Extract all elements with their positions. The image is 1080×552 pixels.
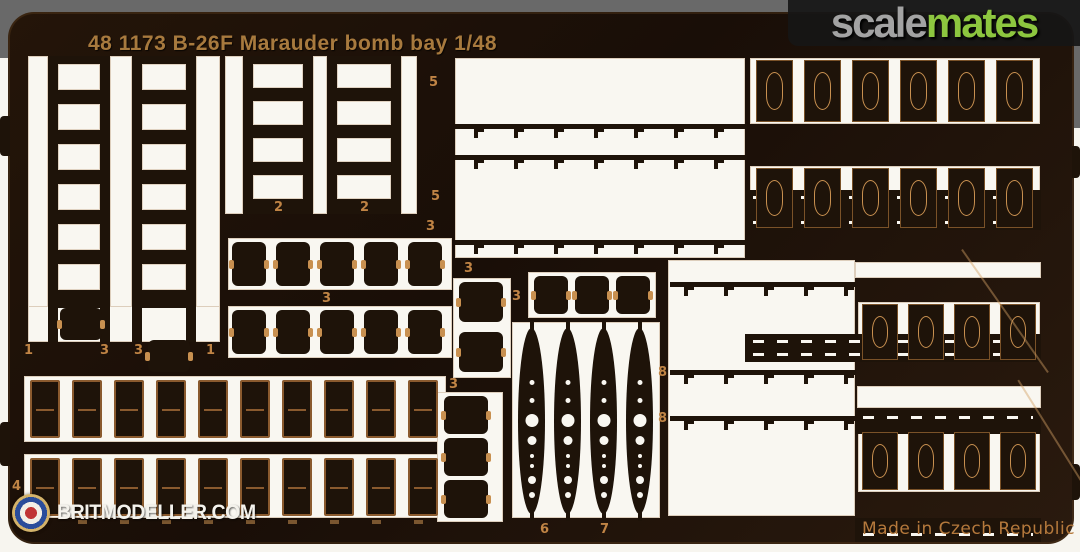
part-number: 3 bbox=[512, 290, 521, 303]
part-number: 3 bbox=[134, 344, 143, 357]
part-number: 6 bbox=[540, 523, 549, 536]
part-slat-row bbox=[30, 380, 438, 438]
part-ladder-large bbox=[48, 56, 110, 308]
part-clamp-box bbox=[534, 276, 650, 314]
part-number: 3 bbox=[464, 262, 473, 275]
cutout bbox=[28, 56, 48, 308]
cutout bbox=[225, 56, 243, 214]
part-panel-slats bbox=[862, 304, 1036, 360]
britmodeller-watermark: BRITMODELLER.COM bbox=[12, 494, 271, 532]
part-clamp-row bbox=[232, 242, 442, 286]
cutout bbox=[855, 262, 1041, 278]
part-blades bbox=[518, 328, 653, 514]
part-number: 3 bbox=[449, 378, 458, 391]
fret-tab bbox=[0, 422, 10, 466]
part-ladder-small bbox=[327, 56, 401, 214]
part-number: 1 bbox=[24, 344, 33, 357]
part-panel-slats bbox=[862, 432, 1036, 490]
product-photo: 1 3 3 1 2 2 5 5 3 3 3 3 3 4 6 7 8 8 48 1… bbox=[0, 0, 1080, 552]
made-in-label: Made in Czech Republic bbox=[862, 519, 1075, 539]
part-panel-slats bbox=[756, 168, 1033, 228]
scalemates-text-gray: scale bbox=[831, 2, 926, 44]
part-number: 7 bbox=[600, 523, 609, 536]
part-number: 1 bbox=[206, 344, 215, 357]
part-ladder-small bbox=[243, 56, 313, 214]
hinge-hooks bbox=[684, 421, 854, 430]
fret-tab bbox=[0, 116, 10, 156]
part-dashed-rail bbox=[855, 410, 1041, 434]
hinge-hooks bbox=[684, 375, 854, 384]
scalemates-text-green: mates bbox=[926, 2, 1037, 44]
cutout bbox=[857, 386, 1041, 408]
part-clamp bbox=[60, 308, 102, 340]
cutout bbox=[313, 56, 327, 214]
fret-tab bbox=[1072, 146, 1080, 178]
part-panel-slats bbox=[756, 60, 1033, 122]
part-number: 3 bbox=[100, 344, 109, 357]
part-number: 5 bbox=[429, 76, 438, 89]
part-number: 3 bbox=[322, 292, 331, 305]
part-number: 3 bbox=[426, 220, 435, 233]
hinge-hooks bbox=[474, 129, 724, 138]
part-number: 8 bbox=[658, 412, 667, 425]
hinge-hooks bbox=[474, 245, 724, 254]
part-number: 2 bbox=[274, 201, 283, 214]
ladder-rail bbox=[186, 306, 196, 342]
britmodeller-text: BRITMODELLER.COM bbox=[57, 501, 256, 525]
part-clamp bbox=[148, 340, 190, 372]
part-clamp-row bbox=[232, 310, 442, 354]
fret-title: 48 1173 B-26F Marauder bomb bay 1/48 bbox=[88, 32, 497, 56]
hinge-hooks bbox=[684, 287, 854, 296]
raf-roundel-icon bbox=[12, 494, 50, 532]
part-number: 8 bbox=[658, 366, 667, 379]
hinge-hooks bbox=[474, 160, 724, 169]
part-number: 4 bbox=[12, 480, 21, 493]
part-number: 5 bbox=[431, 190, 440, 203]
cutout bbox=[110, 56, 132, 308]
part-clamp-box bbox=[444, 396, 488, 518]
part-clamp-box bbox=[459, 282, 503, 372]
cutout bbox=[401, 56, 417, 214]
cutout bbox=[196, 56, 220, 308]
ladder-rail bbox=[132, 306, 142, 342]
cutout bbox=[668, 260, 855, 516]
part-ladder-large bbox=[132, 56, 196, 308]
scalemates-watermark: scalemates bbox=[788, 0, 1080, 46]
part-number: 2 bbox=[360, 201, 369, 214]
